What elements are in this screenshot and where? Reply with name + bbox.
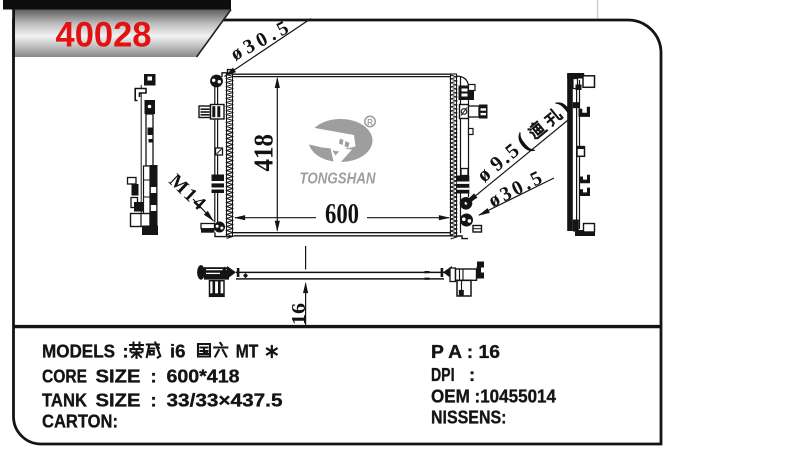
svg-text:CORE: CORE xyxy=(42,366,87,387)
svg-text:MODELS: MODELS xyxy=(42,341,115,362)
svg-text:MT: MT xyxy=(236,341,259,362)
svg-text:33/33×437.5: 33/33×437.5 xyxy=(167,390,283,411)
svg-text:P A : 16: P A : 16 xyxy=(431,341,500,362)
svg-text:OEM :10455014: OEM :10455014 xyxy=(431,386,557,407)
svg-text:16: 16 xyxy=(288,303,310,325)
svg-text:R: R xyxy=(367,118,373,127)
svg-text:600: 600 xyxy=(325,199,359,230)
svg-text:418: 418 xyxy=(248,134,279,172)
svg-text::: : xyxy=(151,366,157,387)
svg-text:SIZE: SIZE xyxy=(96,390,141,411)
svg-text:SIZE: SIZE xyxy=(96,366,141,387)
svg-text::: : xyxy=(469,364,475,385)
svg-text::: : xyxy=(123,341,129,362)
svg-text:TONGSHAN: TONGSHAN xyxy=(300,171,377,188)
svg-text::: : xyxy=(151,390,157,411)
svg-text:TANK: TANK xyxy=(42,390,88,411)
svg-text:CARTON:: CARTON: xyxy=(42,411,118,432)
svg-text:DPI: DPI xyxy=(431,364,455,385)
svg-text:600*418: 600*418 xyxy=(167,366,240,387)
svg-text:i6: i6 xyxy=(170,341,186,362)
svg-text:NISSENS:: NISSENS: xyxy=(431,407,507,428)
svg-text:40028: 40028 xyxy=(56,16,152,55)
